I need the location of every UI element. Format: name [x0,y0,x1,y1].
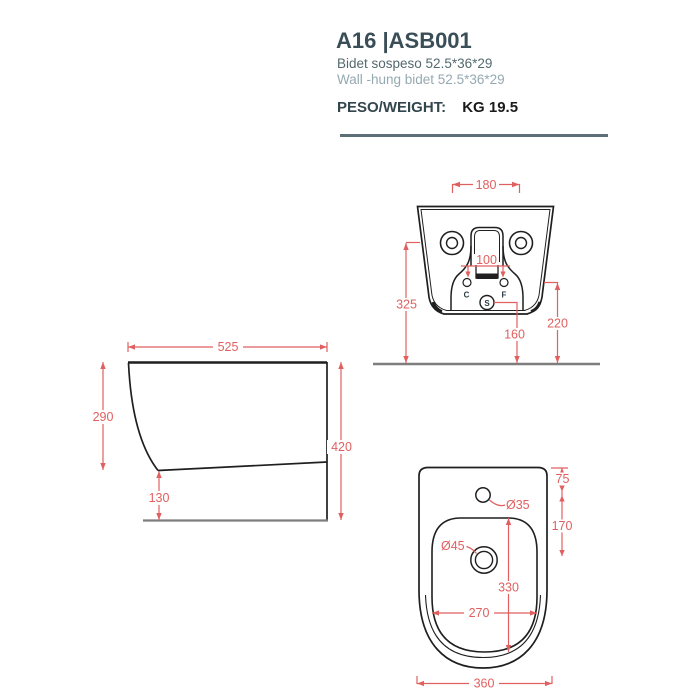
dim-label-330: 330 [498,581,519,595]
technical-drawing: C F S 180 325 100 [0,0,700,700]
rear-view: C F S 180 325 100 [373,178,600,364]
dim-220: 220 [544,283,571,364]
mounting-hole-right [510,232,533,255]
dim-270: 270 [432,606,537,620]
dim-label-100: 100 [476,253,497,267]
dim-label-420: 420 [331,440,352,454]
dim-label-d35: Ø35 [506,498,530,512]
dim-330: 330 [495,518,522,652]
dim-label-270: 270 [469,606,490,620]
dim-label-75: 75 [556,472,570,486]
dim-d45: Ø45 [441,539,477,554]
dim-360: 360 [417,676,552,691]
dim-290: 290 [89,362,117,470]
top-view: 75 170 Ø35 Ø45 330 270 [417,468,574,691]
dim-label-180: 180 [476,178,497,192]
dim-525: 525 [128,340,327,354]
hole-c [463,279,471,287]
dim-180: 180 [453,178,520,193]
mounting-hole-left [441,232,464,255]
dim-75-170: 75 170 [550,468,574,556]
recess-dark-band [477,274,498,280]
rear-corner-shade-left [433,302,442,312]
side-view: 525 290 420 130 [89,340,356,521]
dim-label-360: 360 [474,677,495,691]
dim-label-130: 130 [149,491,170,505]
dim-325: 325 [394,243,420,364]
dim-label-d45: Ø45 [441,539,465,553]
dim-130: 130 [145,471,173,520]
label-c: C [464,291,470,300]
top-rim-inner [426,595,541,658]
hole-f [500,279,508,287]
dim-420: 420 [327,362,356,520]
dim-label-525: 525 [218,340,239,354]
side-bottom-edge [158,462,327,471]
dim-label-220: 220 [547,317,568,331]
dim-label-325: 325 [396,298,417,312]
dim-label-160: 160 [504,328,525,342]
side-front-curve [129,363,159,471]
dim-label-170: 170 [552,519,573,533]
label-f: F [502,291,507,300]
label-s: S [484,299,490,308]
dim-label-290: 290 [93,410,114,424]
dim-d35: Ø35 [490,498,530,512]
dim-160: 160 [494,303,528,364]
faucet-hole [476,488,490,502]
